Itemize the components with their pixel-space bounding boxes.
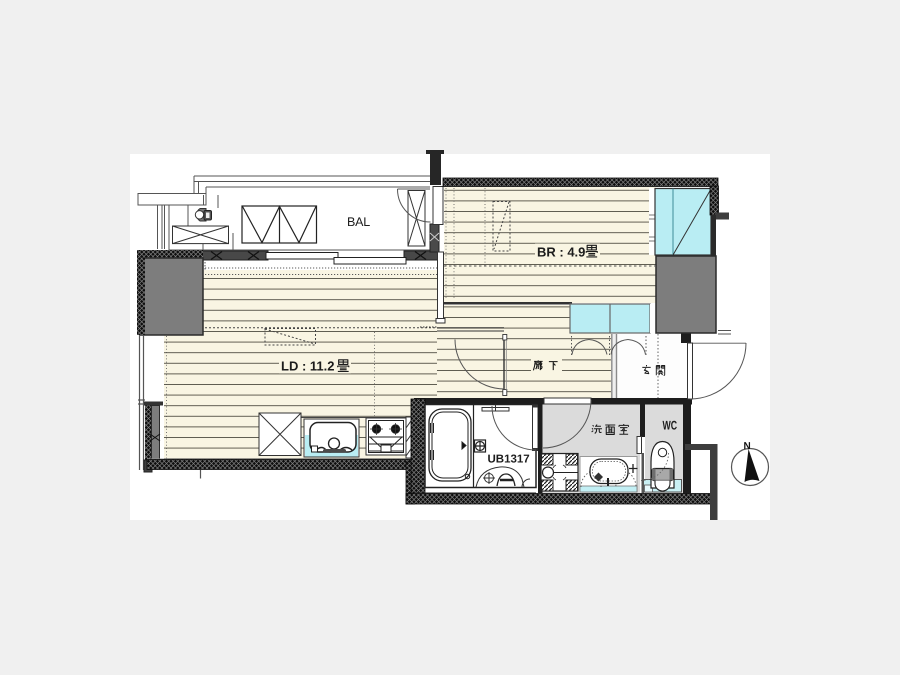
svg-text:BAL: BAL <box>347 215 370 229</box>
svg-text:N: N <box>744 441 751 452</box>
svg-text:LD : 11.2: LD : 11.2 <box>281 359 334 374</box>
svg-text:BR : 4.9: BR : 4.9 <box>537 245 585 260</box>
svg-text:WC: WC <box>663 419 678 433</box>
svg-text:UB1317: UB1317 <box>488 454 530 466</box>
